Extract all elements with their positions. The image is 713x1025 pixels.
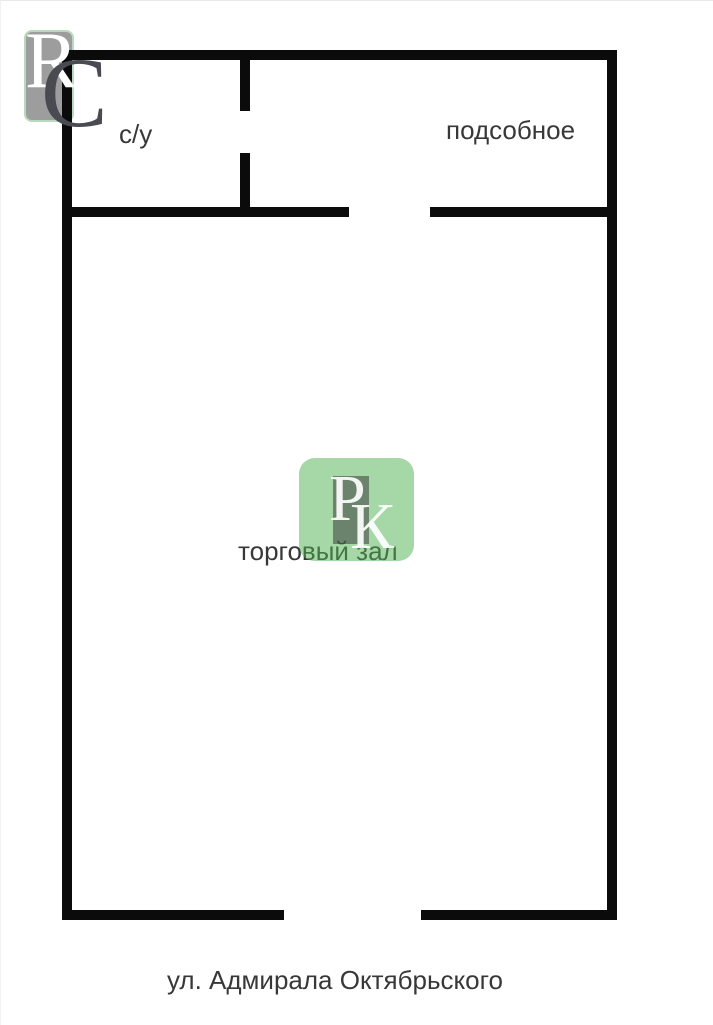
watermark-letter-k: К <box>350 494 394 560</box>
agency-logo-letter-c: C <box>41 43 108 143</box>
wall-inner-vertical-bottom <box>240 153 250 217</box>
room-label-utility: подсобное <box>446 115 575 146</box>
floorplan-canvas: с/у подсобное торговый зал ул. Адмирала … <box>0 0 713 1025</box>
street-address-label: ул. Адмирала Октябрьского <box>167 965 503 996</box>
wall-outer-left <box>62 50 72 920</box>
wall-outer-bottom-left <box>62 910 284 920</box>
room-label-bathroom: с/у <box>119 119 152 150</box>
wall-outer-top <box>62 50 617 60</box>
wall-outer-right <box>607 50 617 920</box>
wall-inner-horizontal-right <box>430 207 617 217</box>
agency-watermark: Р К <box>299 458 414 561</box>
wall-outer-bottom-right <box>421 910 617 920</box>
wall-inner-vertical-top <box>240 50 250 111</box>
wall-inner-horizontal-left <box>62 207 349 217</box>
